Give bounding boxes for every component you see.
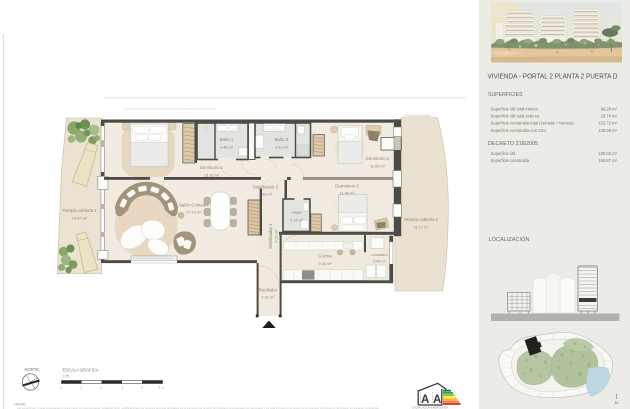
svg-text:11.17 m²: 11.17 m² xyxy=(413,225,429,230)
svg-text:99.28 m²: 99.28 m² xyxy=(601,106,618,111)
svg-text:1: 1 xyxy=(81,386,83,390)
svg-text:138.99 m²: 138.99 m² xyxy=(598,128,617,133)
svg-text:11.09 m²: 11.09 m² xyxy=(370,164,386,169)
svg-text:Distribuidor 1: Distribuidor 1 xyxy=(268,223,273,249)
svg-text:Terraza cubierta 1: Terraza cubierta 1 xyxy=(62,208,97,213)
svg-text:2.14 m²: 2.14 m² xyxy=(290,218,304,223)
svg-text:N: N xyxy=(615,400,618,405)
svg-text:4: 4 xyxy=(141,386,143,390)
svg-text:166.87 m²: 166.87 m² xyxy=(598,158,617,163)
svg-text:6.21 m²: 6.21 m² xyxy=(274,229,279,243)
svg-text:CALIFICACION ENERGETICA: CALIFICACION ENERGETICA xyxy=(412,406,448,409)
svg-text:Superficie útil total exterior: Superficie útil total exterior xyxy=(491,114,540,119)
svg-text:1:75: 1:75 xyxy=(63,375,69,379)
svg-text:Superficie construida total (c: Superficie construida total (cerrada + t… xyxy=(491,121,575,126)
svg-text:VIVIENDA - PORTAL 2 PLANTA 2: VIVIENDA - PORTAL 2 PLANTA 2 PUERTA D xyxy=(488,74,618,81)
svg-text:3: 3 xyxy=(121,386,123,390)
svg-text:4.45 m²: 4.45 m² xyxy=(220,145,234,150)
svg-text:NORTE: NORTE xyxy=(25,367,40,372)
svg-text:A: A xyxy=(421,394,429,406)
svg-text:2: 2 xyxy=(101,386,103,390)
svg-text:5 m: 5 m xyxy=(159,386,165,390)
svg-text:SUPERFICIES: SUPERFICIES xyxy=(488,92,523,98)
svg-text:Aseo: Aseo xyxy=(292,210,302,215)
svg-text:27.12 m²: 27.12 m² xyxy=(186,209,202,214)
svg-text:Lavadero: Lavadero xyxy=(371,252,388,257)
svg-text:Superficie construida: Superficie construida xyxy=(491,158,530,163)
svg-text:100.02 m²: 100.02 m² xyxy=(598,151,617,156)
svg-text:2.69 m²: 2.69 m² xyxy=(259,192,273,197)
svg-text:14.57 m²: 14.57 m² xyxy=(72,216,88,221)
svg-text:11.40 m²: 11.40 m² xyxy=(339,191,355,196)
svg-text:Baño 2: Baño 2 xyxy=(275,137,289,142)
svg-text:ESCALA GRAFICA: ESCALA GRAFICA xyxy=(63,368,99,373)
svg-text:DECRETO 218/2005: DECRETO 218/2005 xyxy=(488,141,538,147)
svg-text:Superficie útil: Superficie útil xyxy=(491,151,516,156)
svg-text:0: 0 xyxy=(61,386,63,390)
svg-text:Salón Comedor: Salón Comedor xyxy=(179,202,209,207)
svg-text:A: A xyxy=(433,394,441,406)
svg-text:Dormitorio 1: Dormitorio 1 xyxy=(200,165,224,170)
svg-text:153.72 m²: 153.72 m² xyxy=(598,121,617,126)
svg-text:4.61 m²: 4.61 m² xyxy=(275,145,289,150)
svg-text:Cocina: Cocina xyxy=(318,254,332,259)
svg-text:Dormitorio 2: Dormitorio 2 xyxy=(366,156,390,161)
svg-text:Baño 1: Baño 1 xyxy=(220,137,234,142)
svg-text:Superficie construida con zzcc: Superficie construida con zzcc xyxy=(491,128,547,133)
svg-text:Superficie útil total interior: Superficie útil total interior xyxy=(491,106,539,111)
svg-text:3.66 m²: 3.66 m² xyxy=(373,260,387,264)
svg-text:29.74 m²: 29.74 m² xyxy=(601,114,618,119)
svg-text:LOCALIZACIÓN: LOCALIZACIÓN xyxy=(489,236,530,243)
svg-text:15.33 m²: 15.33 m² xyxy=(204,173,220,178)
svg-text:Distribuidor 2: Distribuidor 2 xyxy=(253,185,279,190)
svg-text:Dormitorio 3: Dormitorio 3 xyxy=(335,184,359,189)
svg-text:9.05 m²: 9.05 m² xyxy=(318,261,332,266)
svg-text:Recibidor: Recibidor xyxy=(259,288,278,293)
svg-text:Terraza cubierta 2: Terraza cubierta 2 xyxy=(404,217,439,222)
svg-text:1.91 m²: 1.91 m² xyxy=(261,295,275,300)
